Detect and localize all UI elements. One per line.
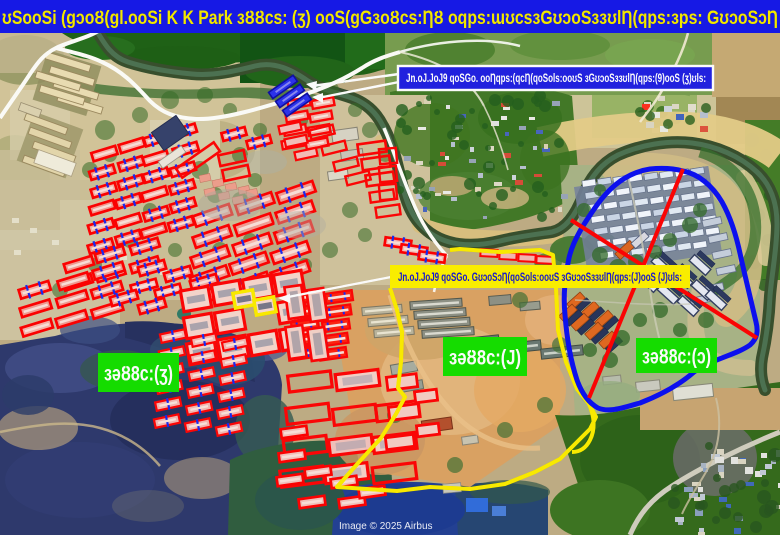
svg-text:ɜəȢ8c:(ʒ): ɜəȢ8c:(ʒ) <box>104 363 173 386</box>
svg-text:ɜəȢ8c:(ɔ): ɜəȢ8c:(ɔ) <box>642 346 711 369</box>
svg-text:Image © 2025 Airbus: Image © 2025 Airbus <box>339 521 433 532</box>
svg-text:Jn.oJ.JoJ9 qoSGo. GʊɔoSɔȠ(qoSo: Jn.oJ.JoJ9 qoSGo. GʊɔoSɔȠ(qoSols:ooʊS ɜG… <box>398 272 682 284</box>
svg-text:Jn.oJ.JoJ9 qoSGo. ooȠqps:(qcȠ(: Jn.oJ.JoJ9 qoSGo. ooȠqps:(qcȠ(qoSols:ooʊ… <box>406 73 706 85</box>
svg-text:ʊSooSi (gɔoȢ(gl.ooSi K K Park: ʊSooSi (gɔoȢ(gl.ooSi K K Park ɜȢȢcs: (ʒ)… <box>2 7 778 29</box>
svg-text:ɜəȢ8c:(J): ɜəȢ8c:(J) <box>449 347 521 370</box>
